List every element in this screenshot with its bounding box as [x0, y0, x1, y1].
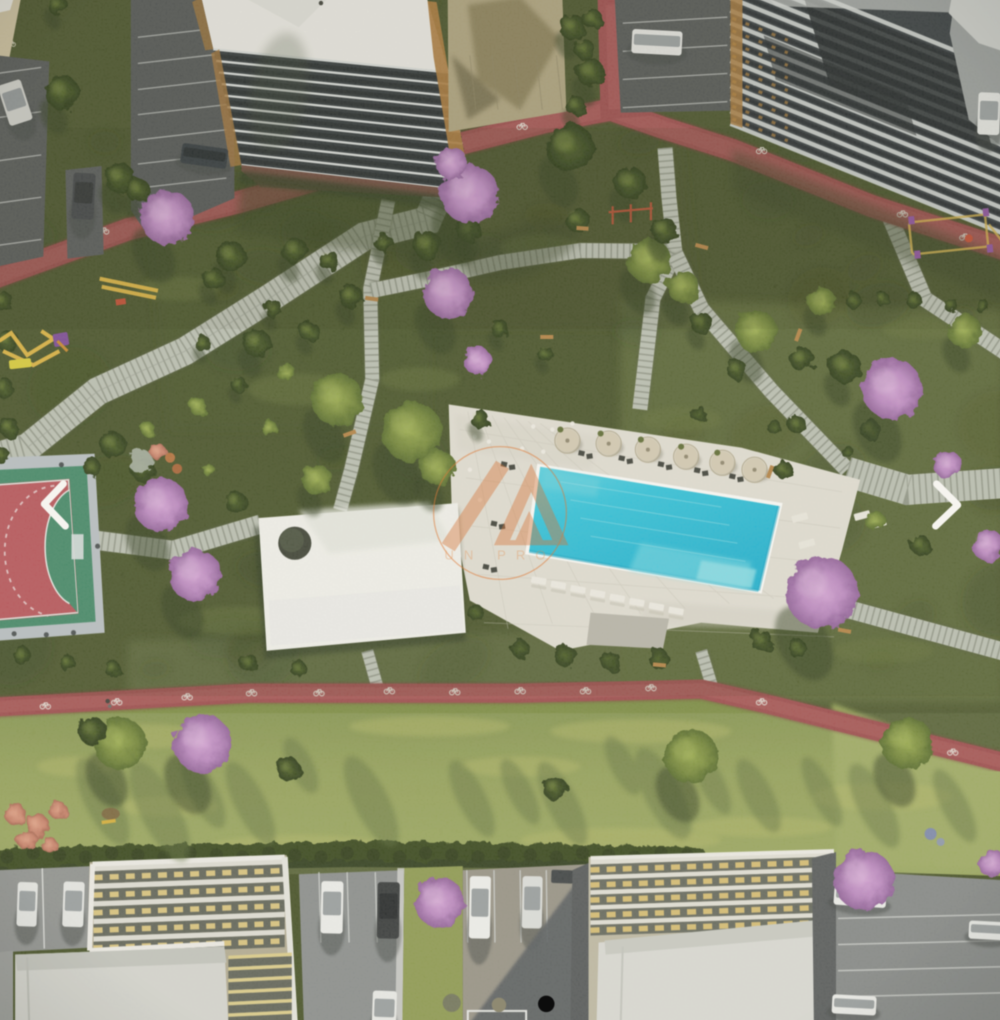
- svg-text:UN PRO: UN PRO: [444, 547, 555, 562]
